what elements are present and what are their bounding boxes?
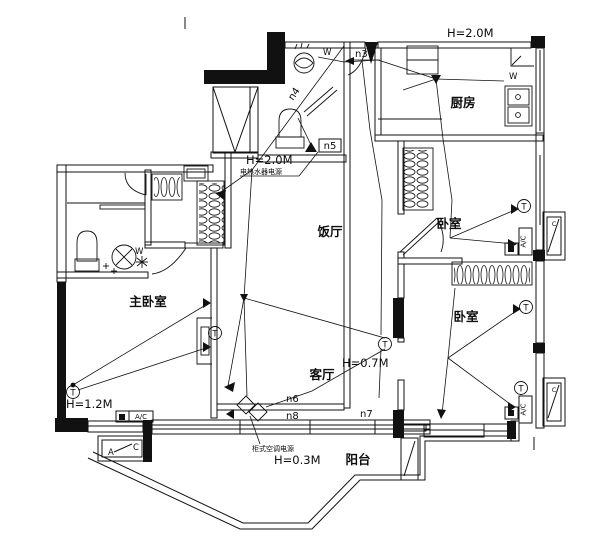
floor-plan: T T T T T T A/C A/C A/C xyxy=(0,0,600,549)
heater-note: 电热水器电源 xyxy=(240,167,282,176)
height-label-corridor: H=0.7M xyxy=(342,356,389,370)
toilet-icon-left xyxy=(75,231,99,271)
kitchen-sink-icon xyxy=(505,86,532,126)
tv-bracket xyxy=(197,318,212,364)
circuit-label-n3: n3 xyxy=(355,49,368,60)
height-label-balcony: H=0.3M xyxy=(274,453,321,467)
outdoor-ac-unit-bottom-left: A C xyxy=(98,435,148,461)
washbasin-icon xyxy=(103,245,136,274)
labels-layer: 厨房 卧室 卧室 主卧室 饭厅 客厅 阳台 H=2.0M H=2.0M 电热水器… xyxy=(66,26,518,467)
distribution-box-symbol xyxy=(237,396,267,421)
room-label-dining: 饭厅 xyxy=(316,224,343,239)
room-label-master: 主卧室 xyxy=(129,294,167,309)
circuit-label-n5: n5 xyxy=(324,141,337,152)
outdoor-unit-c-label: C xyxy=(552,220,557,228)
ac-label: A/C xyxy=(135,413,147,421)
ac-label: A/C xyxy=(520,403,528,415)
socket-t-label: T xyxy=(517,385,524,395)
socket-symbol: T xyxy=(515,382,528,395)
floor-plan-canvas: T T T T T T A/C A/C A/C xyxy=(0,0,600,549)
circuit-label-n8: n8 xyxy=(286,411,299,422)
socket-symbol: T xyxy=(379,338,392,351)
socket-symbol: T xyxy=(518,200,531,213)
circuit-label-n6: n6 xyxy=(286,394,299,405)
circuit-label-n4: n4 xyxy=(286,86,302,103)
ceiling-lamp-icon xyxy=(136,256,148,268)
outdoor-ac-unit-right-bottom: C xyxy=(543,378,565,426)
shaft xyxy=(213,87,258,153)
socket-symbol: T xyxy=(209,327,222,340)
room-label-bedroom-top: 卧室 xyxy=(436,216,462,231)
balcony-ac-note: 柜式空调电源 xyxy=(252,444,294,453)
toilet-icon-top xyxy=(276,109,304,148)
height-label-top: H=2.0M xyxy=(447,26,494,40)
ac-label: A/C xyxy=(520,235,528,247)
outdoor-unit-a-label: A xyxy=(108,448,114,458)
socket-t-label: T xyxy=(381,341,388,351)
socket-symbol: T xyxy=(520,301,533,314)
height-label-heater: H=2.0M xyxy=(246,153,293,167)
socket-t-label: T xyxy=(520,203,527,213)
room-label-balcony: 阳台 xyxy=(345,452,370,467)
socket-t-label: T xyxy=(211,330,218,340)
wall-lamp-label: W xyxy=(509,72,518,82)
wall-lamp-label: W xyxy=(135,247,144,257)
circuit-label-n7: n7 xyxy=(360,409,373,420)
socket-t-label: T xyxy=(522,304,529,314)
room-label-living: 客厅 xyxy=(308,367,335,382)
wall-lamp-label: W xyxy=(323,48,332,58)
outdoor-unit-c-label: C xyxy=(552,386,557,394)
room-label-kitchen: 厨房 xyxy=(450,95,475,110)
outdoor-unit-c-label: C xyxy=(133,443,139,453)
room-label-bedroom-bottom: 卧室 xyxy=(453,309,479,324)
closet-cabinet xyxy=(184,166,208,181)
outdoor-ac-unit-right-top: C xyxy=(543,212,565,260)
height-label-master: H=1.2M xyxy=(66,397,113,411)
